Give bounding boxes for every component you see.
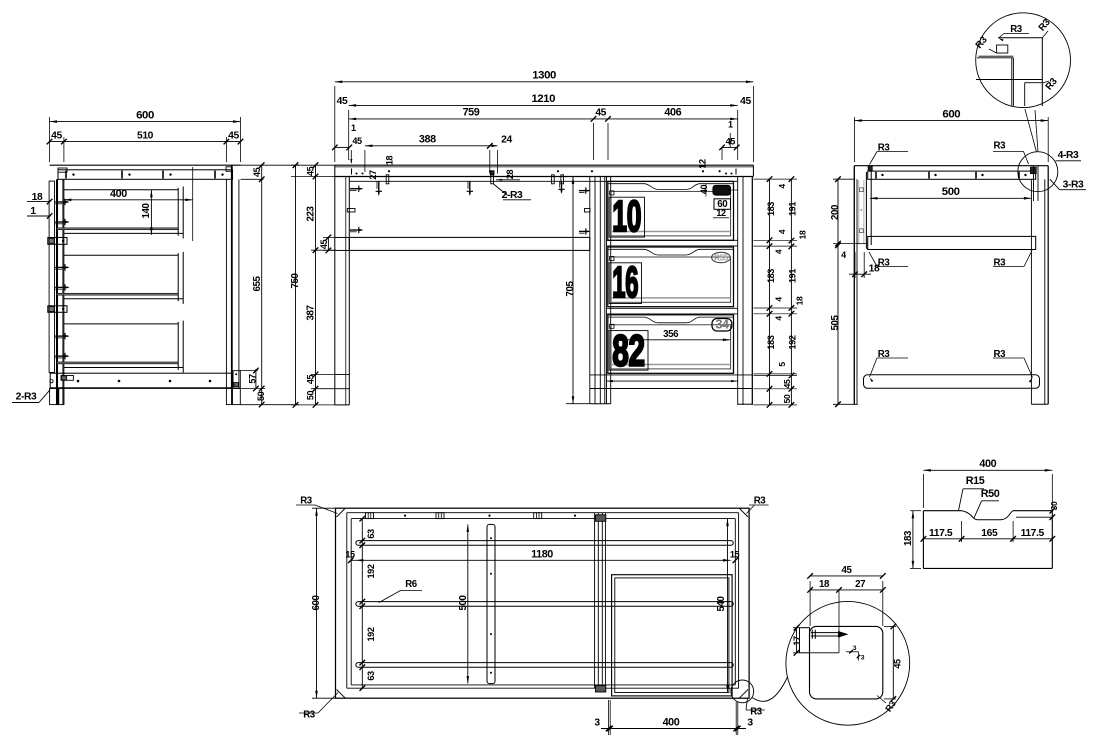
svg-text:R3: R3 xyxy=(303,710,316,721)
svg-text:655: 655 xyxy=(252,276,263,292)
svg-text:510: 510 xyxy=(137,131,154,142)
svg-text:223: 223 xyxy=(306,206,317,222)
svg-text:18: 18 xyxy=(795,296,805,305)
svg-text:27: 27 xyxy=(368,170,378,180)
svg-text:1300: 1300 xyxy=(532,70,556,82)
svg-text:34: 34 xyxy=(715,318,729,332)
svg-text:28: 28 xyxy=(505,170,515,180)
svg-text:4: 4 xyxy=(777,184,787,189)
svg-text:200: 200 xyxy=(830,205,841,220)
svg-text:165: 165 xyxy=(981,528,998,539)
svg-text:50: 50 xyxy=(782,394,792,403)
svg-text:4: 4 xyxy=(774,297,784,302)
svg-text:24: 24 xyxy=(501,135,512,146)
svg-text:R15: R15 xyxy=(966,475,985,487)
svg-text:18: 18 xyxy=(798,230,808,239)
svg-text:192: 192 xyxy=(366,564,376,578)
svg-text:45: 45 xyxy=(595,108,606,119)
svg-text:192: 192 xyxy=(366,627,376,641)
svg-text:R55: R55 xyxy=(714,253,728,262)
svg-text:2-R3: 2-R3 xyxy=(16,392,37,403)
svg-text:45: 45 xyxy=(782,379,792,388)
svg-text:750: 750 xyxy=(290,274,301,289)
svg-text:45: 45 xyxy=(893,659,903,669)
svg-text:R50: R50 xyxy=(981,488,1000,500)
svg-text:1: 1 xyxy=(351,123,356,133)
svg-text:3: 3 xyxy=(747,718,753,729)
svg-text:45: 45 xyxy=(252,167,262,177)
svg-text:4: 4 xyxy=(774,249,784,254)
svg-text:45: 45 xyxy=(51,131,62,142)
svg-text:1: 1 xyxy=(30,206,36,217)
svg-text:45: 45 xyxy=(228,131,239,142)
svg-text:191: 191 xyxy=(788,269,798,283)
svg-text:5: 5 xyxy=(777,362,787,367)
svg-text:82: 82 xyxy=(612,327,645,376)
svg-text:117.5: 117.5 xyxy=(1021,528,1045,539)
svg-text:40: 40 xyxy=(699,185,709,195)
svg-text:45: 45 xyxy=(306,166,316,176)
svg-text:45: 45 xyxy=(337,96,348,107)
svg-text:30: 30 xyxy=(1049,501,1059,510)
svg-text:18: 18 xyxy=(384,156,394,166)
svg-text:400: 400 xyxy=(663,717,680,729)
svg-text:R3: R3 xyxy=(750,707,763,718)
svg-text:4: 4 xyxy=(777,229,787,234)
svg-text:387: 387 xyxy=(306,306,317,321)
svg-text:505: 505 xyxy=(830,315,841,331)
svg-text:45: 45 xyxy=(306,375,316,385)
svg-text:45: 45 xyxy=(740,96,751,107)
svg-text:1: 1 xyxy=(728,120,733,130)
svg-text:1210: 1210 xyxy=(531,93,555,105)
svg-text:15: 15 xyxy=(730,550,740,560)
svg-text:4: 4 xyxy=(774,316,784,321)
svg-text:183: 183 xyxy=(903,530,914,546)
svg-text:16: 16 xyxy=(612,258,638,307)
svg-text:140: 140 xyxy=(141,204,152,219)
svg-text:4-R3: 4-R3 xyxy=(1058,150,1079,161)
svg-text:12: 12 xyxy=(716,208,726,218)
svg-text:57: 57 xyxy=(248,374,258,384)
svg-text:27: 27 xyxy=(855,579,865,590)
svg-text:183: 183 xyxy=(766,269,776,283)
svg-text:356: 356 xyxy=(663,329,679,340)
svg-text:600: 600 xyxy=(311,596,322,611)
svg-text:R6: R6 xyxy=(405,579,418,590)
svg-text:183: 183 xyxy=(766,335,776,349)
svg-text:3-R3: 3-R3 xyxy=(1063,180,1084,191)
svg-text:759: 759 xyxy=(463,107,480,119)
svg-text:705: 705 xyxy=(565,281,576,297)
svg-text:15: 15 xyxy=(345,550,355,560)
svg-text:500: 500 xyxy=(942,186,960,198)
svg-text:191: 191 xyxy=(788,202,798,216)
svg-text:500: 500 xyxy=(458,596,469,611)
svg-text:50: 50 xyxy=(256,391,266,401)
svg-text:388: 388 xyxy=(419,134,436,146)
svg-text:17: 17 xyxy=(792,636,802,646)
svg-text:45: 45 xyxy=(319,240,329,250)
svg-text:400: 400 xyxy=(979,458,996,470)
svg-text:45: 45 xyxy=(352,136,362,146)
svg-text:406: 406 xyxy=(664,107,681,119)
svg-text:45: 45 xyxy=(842,565,853,576)
svg-text:50: 50 xyxy=(306,391,316,401)
svg-text:400: 400 xyxy=(110,188,127,200)
svg-text:600: 600 xyxy=(942,108,960,120)
svg-text:600: 600 xyxy=(136,109,154,121)
svg-text:63: 63 xyxy=(366,529,376,539)
svg-text:2-R3: 2-R3 xyxy=(502,190,523,201)
svg-text:540: 540 xyxy=(716,597,727,612)
svg-text:192: 192 xyxy=(788,335,798,349)
svg-text:117.5: 117.5 xyxy=(929,528,953,539)
svg-text:63: 63 xyxy=(366,671,376,681)
svg-text:1180: 1180 xyxy=(531,549,553,561)
svg-text:R3: R3 xyxy=(994,140,1007,151)
svg-text:10: 10 xyxy=(612,192,641,241)
svg-text:3: 3 xyxy=(594,718,600,729)
svg-text:18: 18 xyxy=(819,579,830,590)
svg-text:183: 183 xyxy=(766,202,776,216)
